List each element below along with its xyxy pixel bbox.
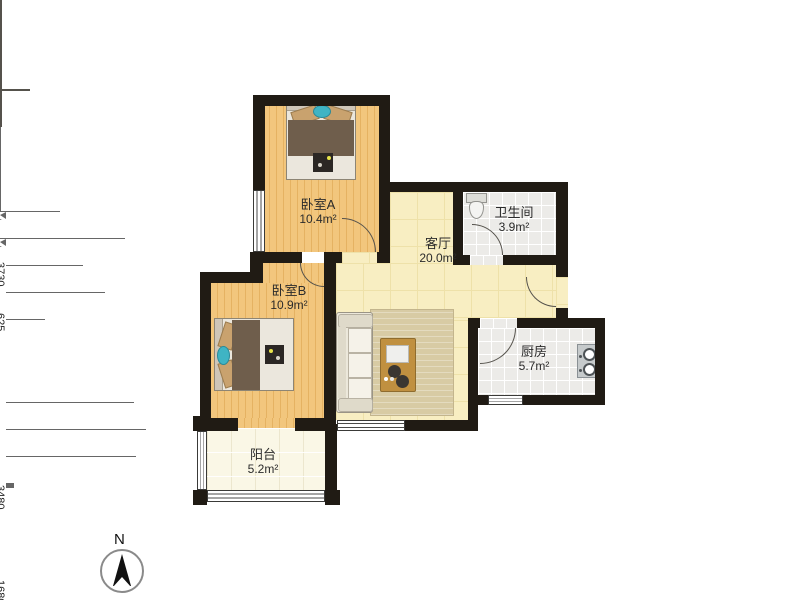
wall [253,106,265,190]
sofa-cushion [348,353,372,378]
wall [200,272,211,428]
bed-cushion [217,346,230,365]
room-label-kitchen: 厨房 5.7m² [519,344,550,374]
stove-knob [579,369,582,372]
bathroom-door-leaf [0,58,2,89]
entry-door-leaf [0,89,30,91]
toilet-bowl [469,201,484,219]
entry-doorway-floor [556,277,568,308]
dimension-line [0,429,146,430]
dimension-arrow [0,239,6,246]
bed-bench [265,345,284,364]
dimension-arrow [0,212,6,219]
bed-double [214,318,294,391]
bed-double [286,102,356,180]
dimension-line [0,265,83,266]
window [197,431,207,490]
bed-duvet [232,320,260,390]
wall [390,182,568,192]
wall [325,490,340,505]
kitchen-door-leaf [0,91,2,127]
wall [468,318,480,328]
room-area: 3.9m² [494,220,533,235]
wall [324,252,336,424]
compass-needle-notch [113,577,131,587]
sofa-cushion [348,328,372,353]
dimension-tick [0,183,1,197]
dimension-line [0,456,136,457]
wall [556,192,568,277]
wall [193,416,207,431]
wall [379,95,390,263]
dimension-tick [0,169,1,183]
sofa-cushion [348,378,372,399]
wall [468,328,478,431]
wall [503,255,556,265]
compass-n-label: N [114,531,125,548]
window [207,490,325,502]
tray [386,345,409,363]
compass [100,549,144,593]
lamp-dot [327,156,331,160]
dimension-line [0,402,134,403]
dimension-line [0,319,45,320]
wall [523,395,605,405]
wall [595,328,605,405]
room-label-bedroom-a: 卧室A 10.4m² [299,197,336,227]
living-room-floor [342,252,377,263]
wall [517,318,605,328]
window [337,420,405,431]
sofa-back [338,327,346,398]
floor-plan-page: 1325278018552330990308033563130373062534… [0,0,800,600]
bedroom-a-door-leaf [0,0,2,34]
table-dot [384,377,388,381]
room-name: 厨房 [519,344,550,359]
dimension-line [0,238,125,239]
wall [405,420,478,431]
coffee-table [380,338,416,392]
room-name: 卫生间 [494,205,533,220]
dimension-line [0,292,105,293]
room-name: 卧室A [299,197,336,212]
dimension-tick [0,197,1,211]
lamp-dot [269,349,273,353]
dimension-tick [0,127,1,141]
window [253,190,265,252]
room-label-living-room: 客厅 20.0m² [419,236,456,266]
sofa-armrest [338,314,373,328]
room-area: 5.7m² [519,359,550,374]
sofa-armrest [338,398,373,412]
room-name: 卧室B [270,283,307,298]
bed-duvet [288,120,354,156]
wall [250,252,302,263]
lamp-dot [318,163,322,167]
sofa [336,312,373,413]
dimension-tick [0,141,1,155]
table-decor [396,375,409,388]
dimension-label: 1680 [0,577,6,600]
table-dot [390,377,394,381]
bedroom-b-door-leaf [0,34,2,58]
room-label-bathroom: 卫生间 3.9m² [494,205,533,235]
lamp-dot [276,356,280,360]
room-name: 阳台 [248,447,279,462]
stove-knob [579,355,582,358]
toilet [466,193,487,220]
room-area: 10.9m² [270,298,307,313]
bed-cushion [313,105,331,118]
bathroom-doorway-floor [470,255,503,265]
room-name: 客厅 [419,236,456,251]
room-area: 20.0m² [419,251,456,266]
wall [193,490,207,505]
wall [253,95,390,106]
room-area: 10.4m² [299,212,336,227]
kitchen-doorway-floor [480,318,517,328]
room-area: 5.2m² [248,462,279,477]
dimension-line [0,211,60,212]
dimension-tick [0,155,1,169]
floor-plan: 1325278018552330990308033563130373062534… [0,0,800,600]
room-label-balcony: 阳台 5.2m² [248,447,279,477]
room-label-bedroom-b: 卧室B 10.9m² [270,283,307,313]
window [488,395,523,405]
